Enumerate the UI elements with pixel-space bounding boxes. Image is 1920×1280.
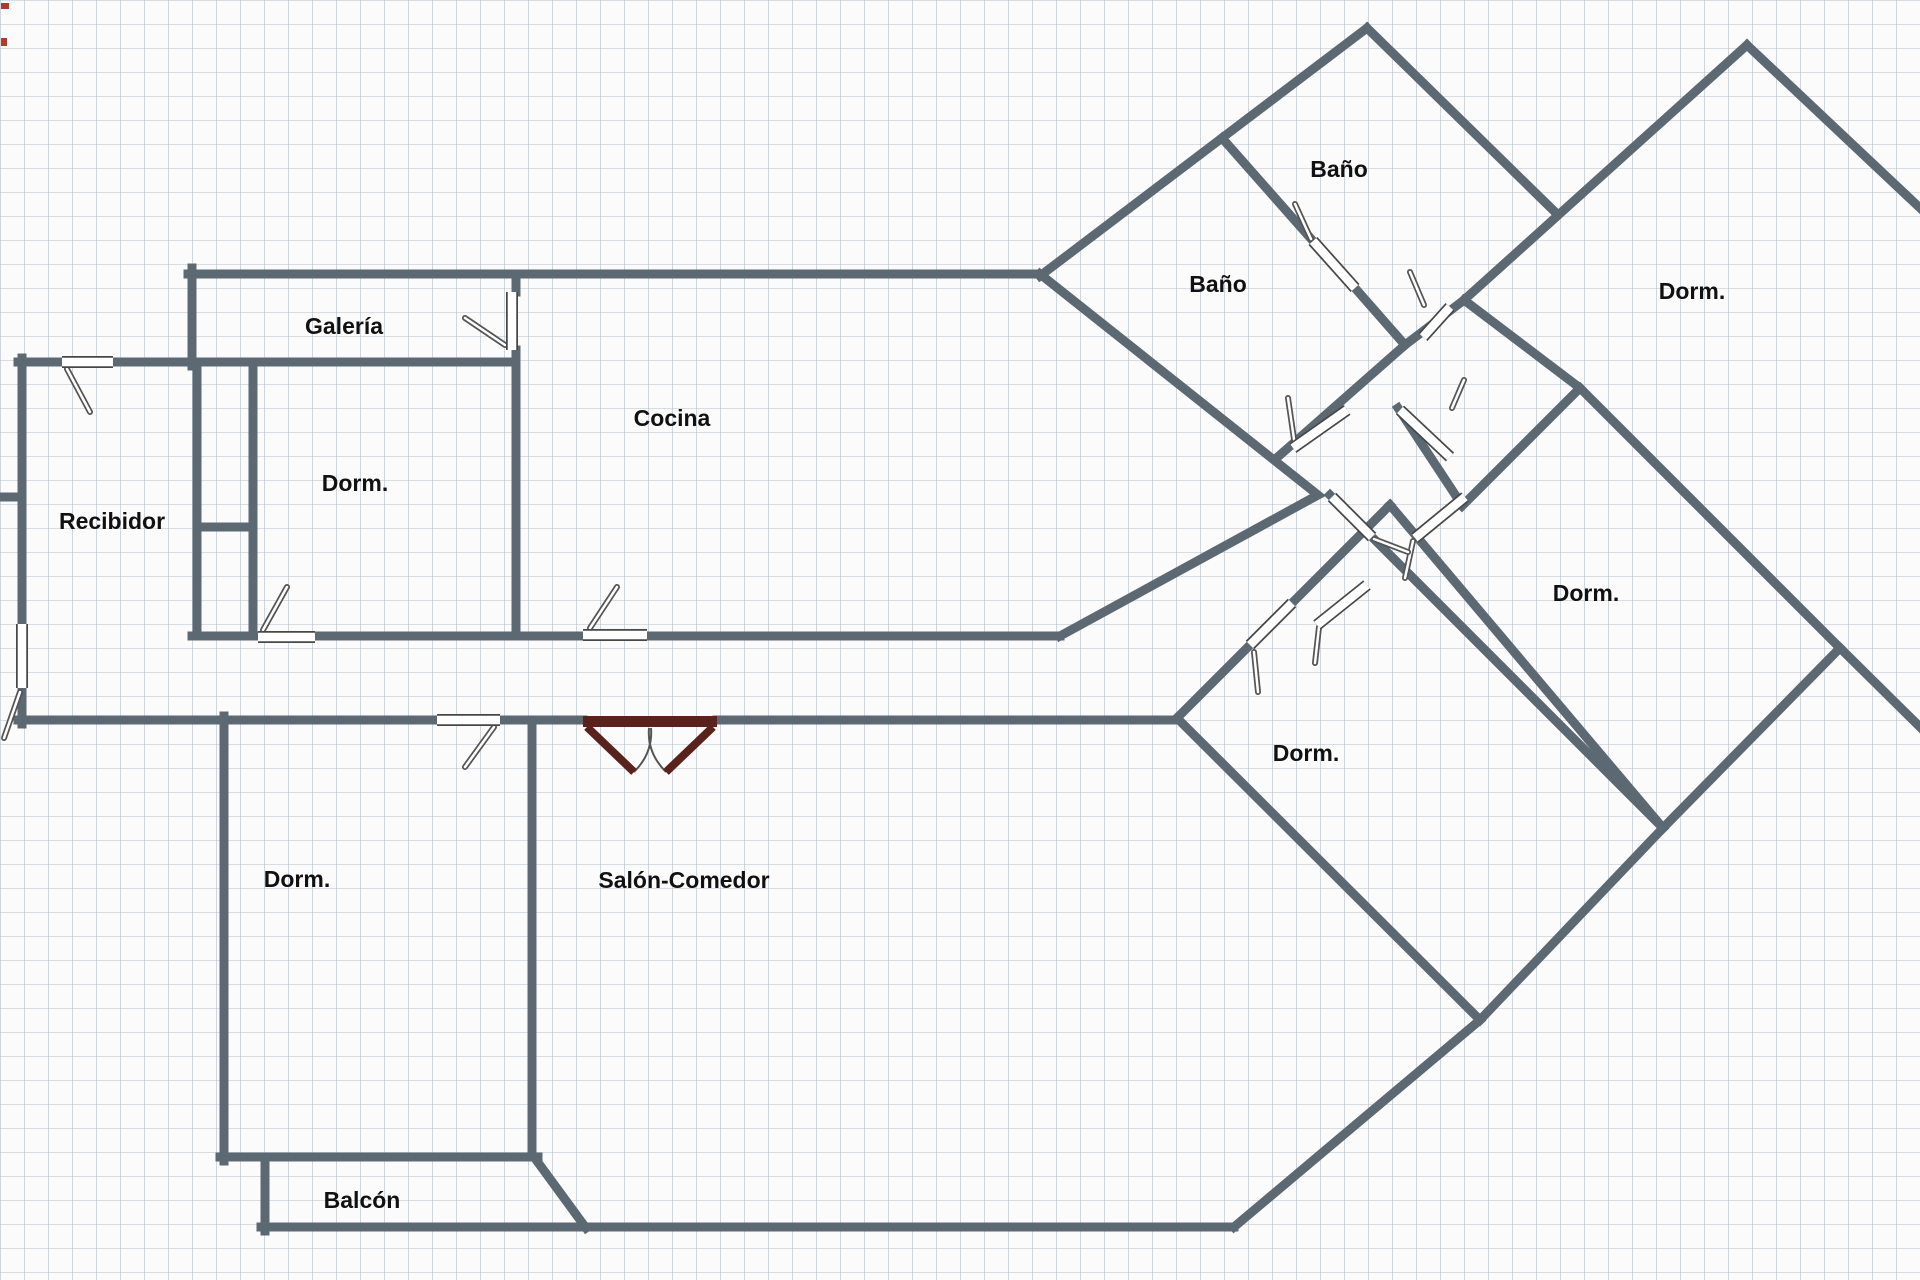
room-label-cocina: Cocina <box>634 405 711 431</box>
wall-dormb-upperleft-b <box>1292 505 1390 603</box>
room-label-dorm-top-right: Dorm. <box>1659 278 1725 304</box>
corner-mark-2 <box>1 38 7 46</box>
wall-bigdorm-left-edge <box>1464 45 1747 300</box>
door-dormb-leaf <box>1250 603 1292 645</box>
wall-dormb-lowerright <box>1480 828 1663 1020</box>
wall-exit-right <box>1840 648 1920 727</box>
room-label-bano-upper: Baño <box>1310 156 1368 182</box>
room-label-galeria: Galería <box>305 313 383 339</box>
door-corridor-leaf <box>1332 497 1372 537</box>
room-label-bano-lower: Baño <box>1189 271 1247 297</box>
wall-chamfer <box>534 1157 586 1228</box>
room-label-dorm-top-left: Dorm. <box>322 470 388 496</box>
entry-double-door-right-leaf <box>666 727 713 772</box>
corner-mark-1 <box>1 3 9 9</box>
door-recibidor-top-swing-core <box>67 369 90 412</box>
entry-double-door-bar <box>583 716 717 727</box>
door-middorm-leaf <box>1415 497 1465 538</box>
door-center-low-leaf <box>1317 585 1367 625</box>
door-bano-sep-leaf <box>1313 241 1355 288</box>
door-stub-3-swing-core <box>1452 380 1464 408</box>
room-label-balcon: Balcón <box>324 1187 401 1213</box>
wall-dormb-upperleft-a <box>1177 645 1250 718</box>
wall-middorm-lower-right <box>1663 648 1840 828</box>
floorplan-drawing: GaleríaDorm.RecibidorCocinaBañoBañoDorm.… <box>0 0 1920 1280</box>
door-cocina-swing-core <box>590 587 617 628</box>
floorplan-canvas: GaleríaDorm.RecibidorCocinaBañoBañoDorm.… <box>0 0 1920 1280</box>
wall-bano-separator-a <box>1222 138 1313 241</box>
wall-middorm-upper-left <box>1462 388 1580 506</box>
room-label-dorm-bottom-left: Dorm. <box>264 866 330 892</box>
wall-bano-separator-b <box>1355 288 1405 345</box>
wall-bigdorm-right-edge <box>1747 45 1920 208</box>
room-label-recibidor: Recibidor <box>59 508 165 534</box>
wall-dormb-upperright <box>1390 505 1663 828</box>
room-label-dorm-mid-right: Dorm. <box>1553 580 1619 606</box>
door-hall-dormbl-swing-core <box>465 727 494 767</box>
door-stub-north-swing-core <box>1410 272 1424 305</box>
door-stub-north-leaf <box>1423 307 1450 337</box>
wall-salon-bottom-right <box>1234 1020 1480 1227</box>
wall-bano-right-edge <box>1367 28 1554 211</box>
door-galeria-swing-core <box>465 318 505 345</box>
door-dorm-tl-swing-core <box>263 587 287 630</box>
wall-corridor <box>1330 495 1663 828</box>
entry-double-door-left-leaf <box>587 727 634 772</box>
room-label-dorm-bottom: Dorm. <box>1273 740 1339 766</box>
room-label-salon-comedor: Salón-Comedor <box>598 867 769 893</box>
wall-spine <box>1464 300 1840 648</box>
